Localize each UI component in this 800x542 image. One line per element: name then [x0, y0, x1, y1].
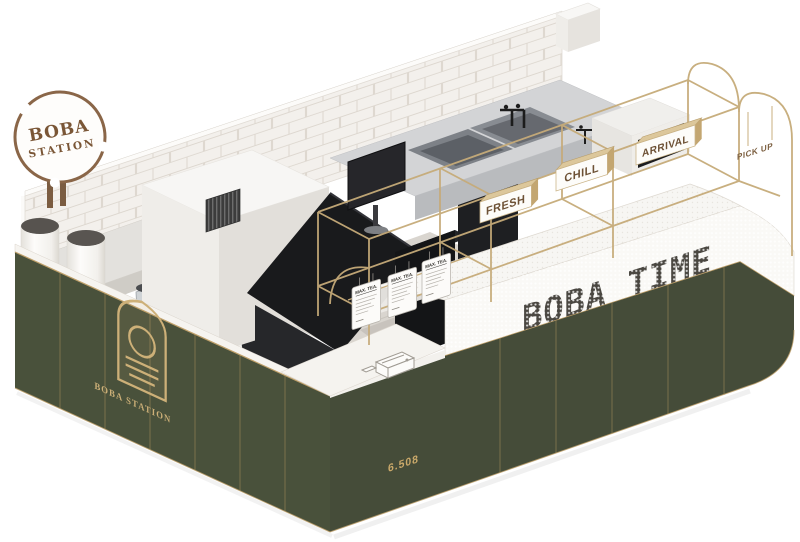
pickup-hangers — [748, 106, 772, 146]
pickup-sign: PICK UP — [737, 140, 773, 162]
boba-kiosk-render: BOBA TIME 6.508 BOBA STATION — [0, 0, 800, 542]
corner-duct-box — [556, 3, 600, 52]
arch — [739, 93, 792, 140]
isometric-scene: BOBA TIME 6.508 BOBA STATION — [0, 0, 800, 542]
svg-text:PICK UP: PICK UP — [737, 140, 773, 162]
